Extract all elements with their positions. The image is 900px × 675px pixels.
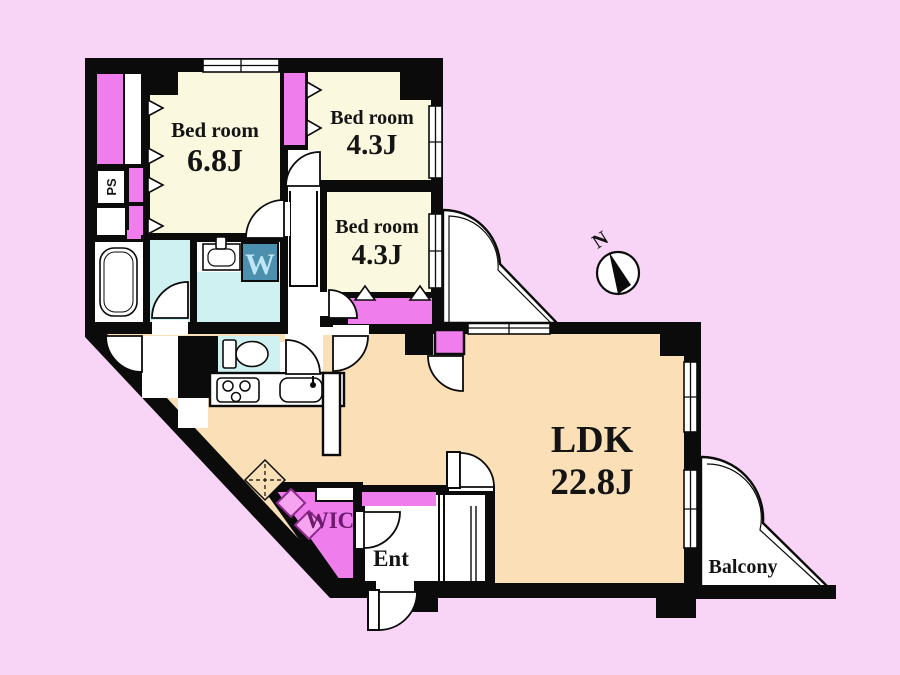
hall-door-leaf	[290, 188, 317, 286]
shoe-cabinet	[362, 492, 436, 506]
wall-chunk	[405, 326, 433, 355]
door-leaf	[447, 452, 460, 488]
bathroom	[95, 242, 143, 322]
window	[429, 214, 442, 288]
bedroom3-size: 4.3J	[352, 239, 403, 271]
bedroom1-size: 6.8J	[187, 142, 243, 178]
bedroom2-name: Bed room	[330, 107, 414, 129]
closet	[97, 74, 123, 164]
bedroom3-name: Bed room	[335, 216, 419, 238]
pipe-space-label: PS	[104, 178, 119, 196]
wic-cabinet	[316, 487, 354, 501]
closet-column	[97, 74, 143, 239]
floor-plan-page: W	[0, 0, 900, 675]
washer-label: W	[245, 248, 275, 281]
window	[203, 59, 279, 72]
entrance-door-leaf	[368, 590, 379, 630]
wic-label: WIC	[306, 508, 355, 533]
sink-icon	[280, 376, 322, 402]
closet	[435, 330, 464, 354]
balcony-label: Balcony	[709, 556, 778, 578]
window	[684, 470, 697, 548]
kitchen-partition	[323, 373, 340, 455]
ldk-size: 22.8J	[550, 462, 633, 503]
window	[684, 362, 697, 432]
bedroom2-size: 4.3J	[347, 129, 398, 161]
toilet-room	[218, 336, 280, 374]
ldk-name: LDK	[551, 419, 634, 461]
closet	[348, 298, 432, 324]
floor-plan-svg: W	[0, 0, 900, 675]
stove-icon	[217, 378, 259, 402]
toilet-icon	[223, 340, 268, 368]
washer-box: W	[242, 243, 278, 281]
entrance-label: Ent	[373, 546, 409, 571]
window	[429, 106, 442, 178]
bedroom1-name: Bed room	[171, 118, 259, 142]
closet	[284, 73, 305, 145]
closet	[129, 168, 143, 202]
